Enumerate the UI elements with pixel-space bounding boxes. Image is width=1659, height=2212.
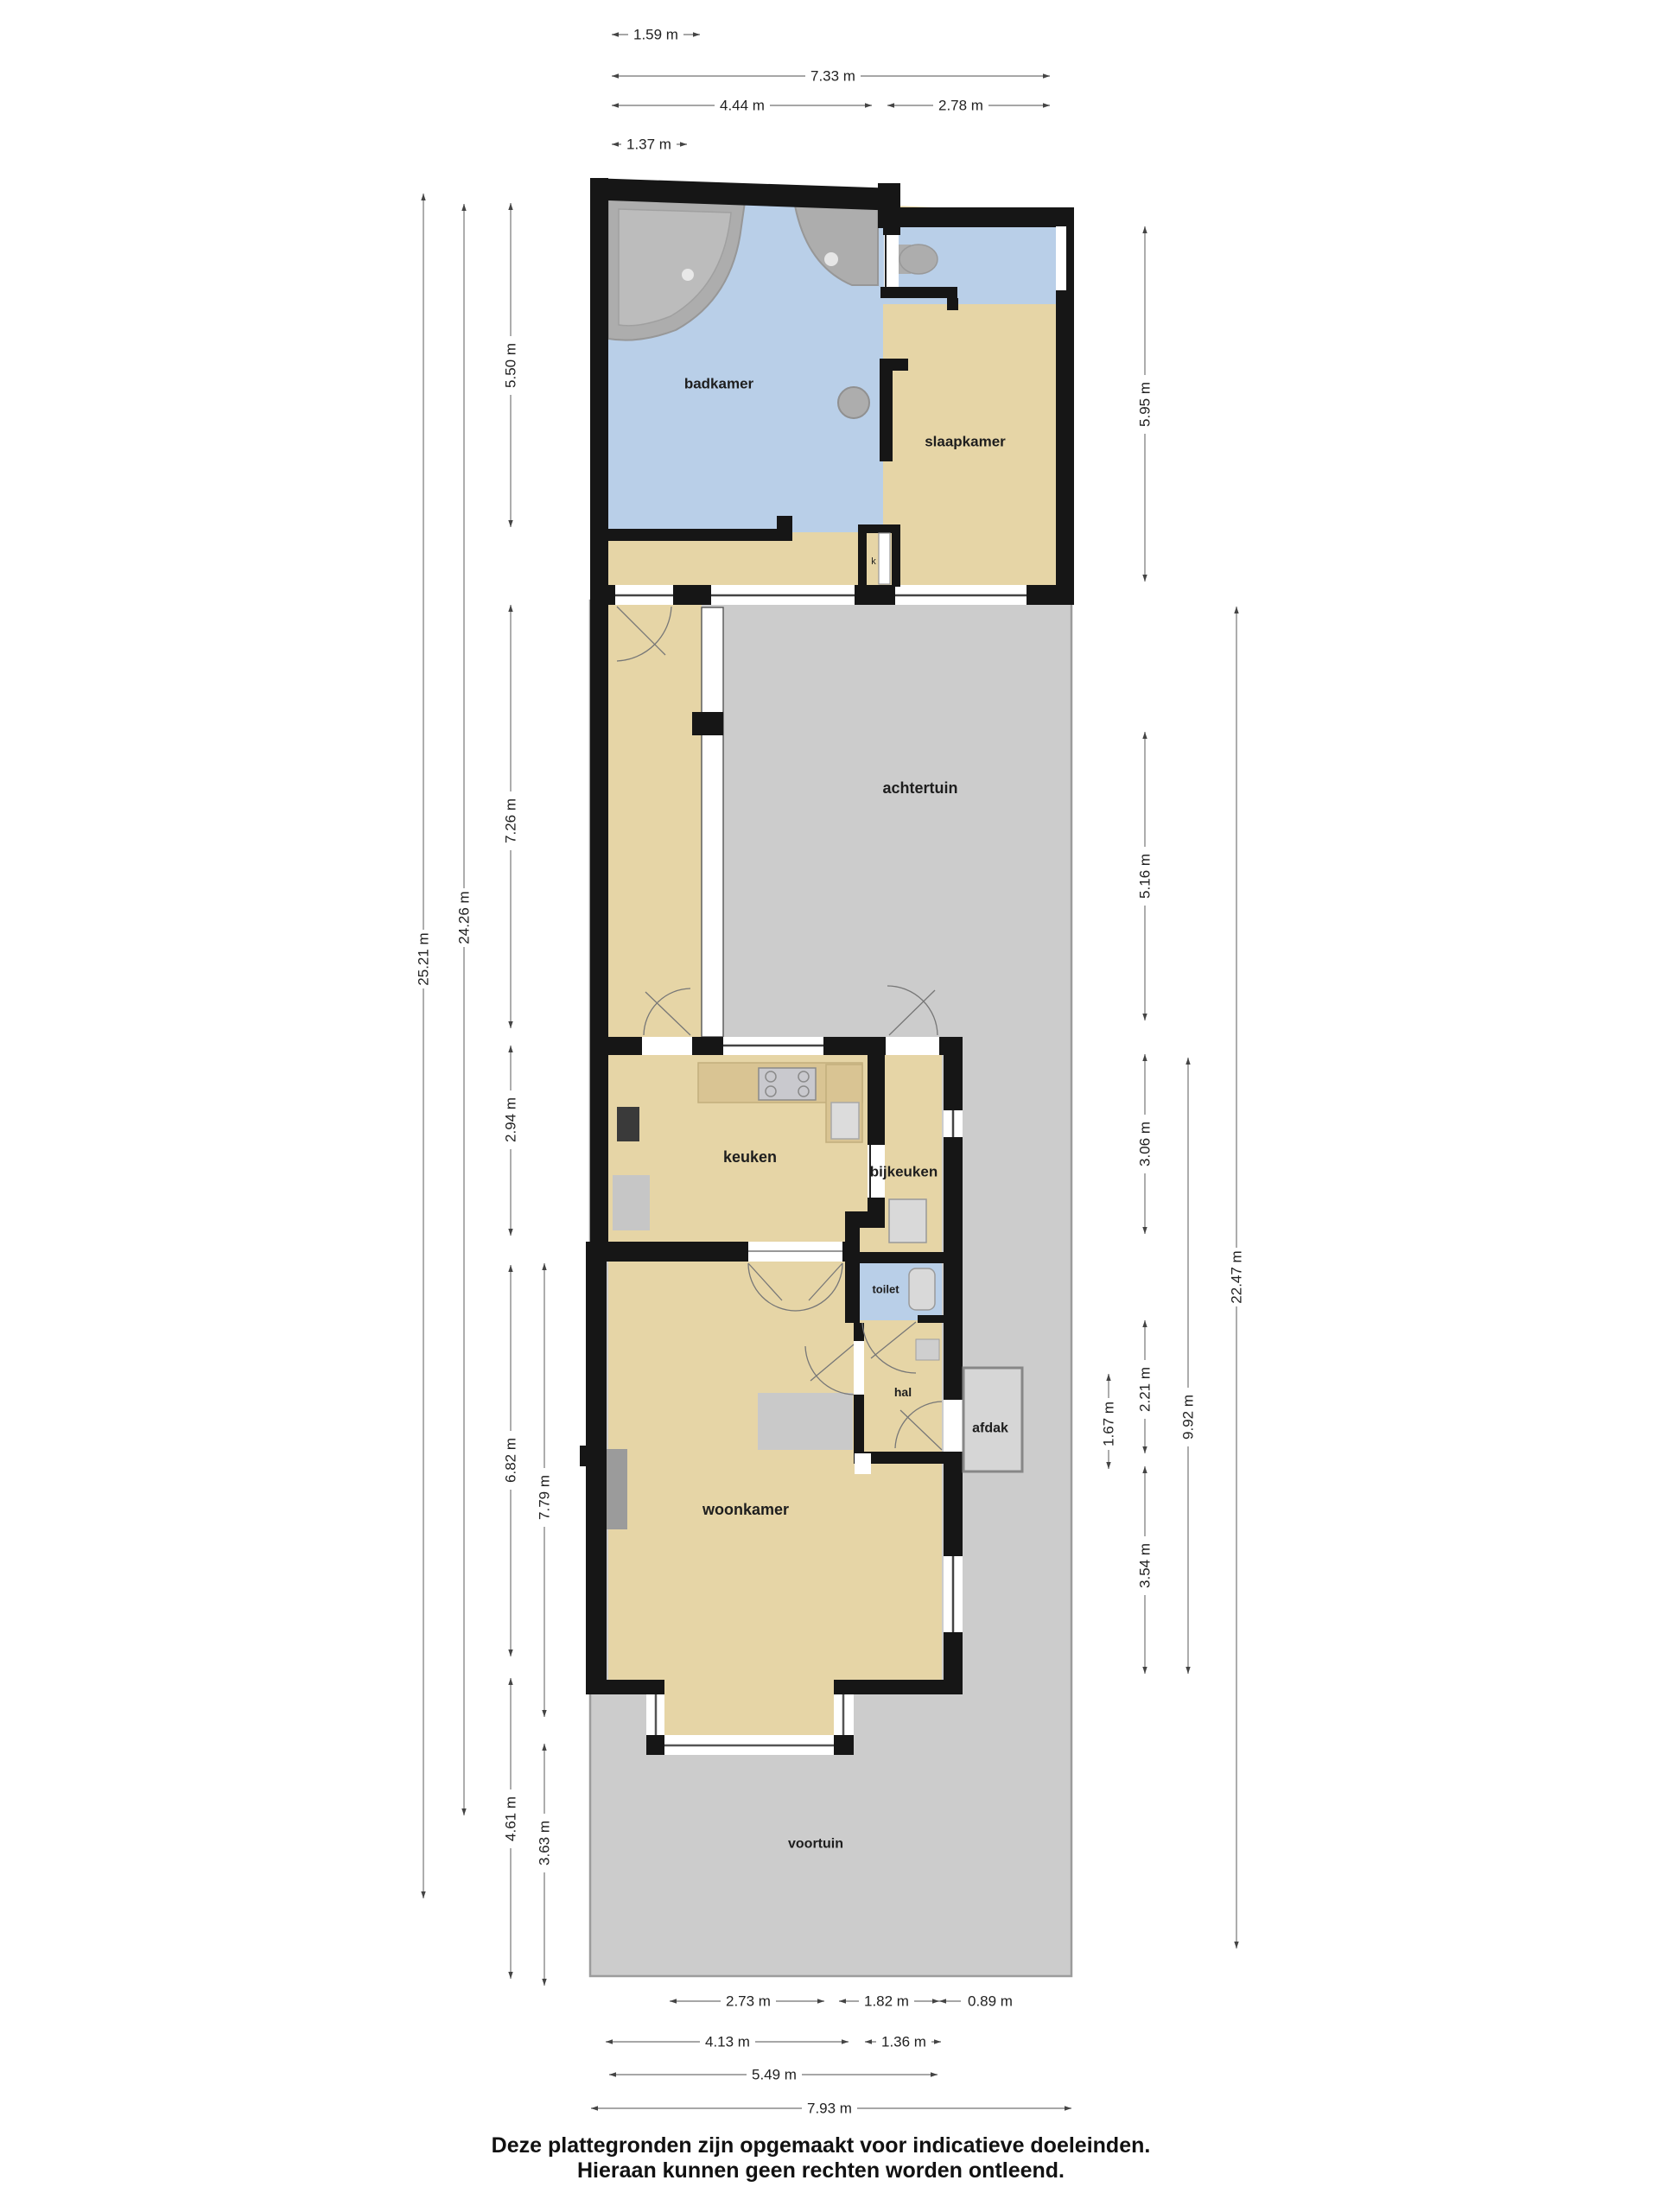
svg-text:5.95 m: 5.95 m xyxy=(1137,382,1154,427)
svg-text:7.93 m: 7.93 m xyxy=(807,2101,852,2117)
svg-text:3.54 m: 3.54 m xyxy=(1137,1543,1154,1588)
svg-text:2.21 m: 2.21 m xyxy=(1137,1367,1154,1412)
svg-text:3.63 m: 3.63 m xyxy=(537,1821,553,1866)
svg-text:2.73 m: 2.73 m xyxy=(726,1993,771,2010)
svg-text:hal: hal xyxy=(894,1385,912,1399)
svg-text:Hieraan kunnen geen rechten wo: Hieraan kunnen geen rechten worden ontle… xyxy=(577,2158,1065,2183)
svg-text:1.82 m: 1.82 m xyxy=(864,1993,909,2010)
svg-text:1.36 m: 1.36 m xyxy=(881,2034,926,2050)
svg-text:25.21 m: 25.21 m xyxy=(416,932,432,985)
svg-text:2.94 m: 2.94 m xyxy=(503,1097,519,1142)
svg-text:voortuin: voortuin xyxy=(788,1837,843,1852)
svg-text:5.16 m: 5.16 m xyxy=(1137,854,1154,899)
svg-text:3.06 m: 3.06 m xyxy=(1137,1122,1154,1166)
svg-text:slaapkamer: slaapkamer xyxy=(925,434,1006,450)
svg-text:toilet: toilet xyxy=(872,1283,899,1296)
svg-text:2.78 m: 2.78 m xyxy=(938,98,983,114)
svg-text:woonkamer: woonkamer xyxy=(702,1501,789,1518)
svg-text:1.59 m: 1.59 m xyxy=(633,27,678,43)
svg-text:5.49 m: 5.49 m xyxy=(752,2067,797,2083)
svg-text:k: k xyxy=(871,556,876,567)
svg-text:4.61 m: 4.61 m xyxy=(503,1796,519,1841)
svg-text:Deze plattegronden zijn opgema: Deze plattegronden zijn opgemaakt voor i… xyxy=(492,2133,1151,2158)
svg-text:0.89 m: 0.89 m xyxy=(968,1993,1013,2010)
svg-text:bijkeuken: bijkeuken xyxy=(870,1164,938,1180)
svg-text:1.37 m: 1.37 m xyxy=(626,137,671,153)
svg-text:5.50 m: 5.50 m xyxy=(503,343,519,388)
svg-text:24.26 m: 24.26 m xyxy=(456,891,473,944)
svg-text:6.82 m: 6.82 m xyxy=(503,1438,519,1483)
svg-text:9.92 m: 9.92 m xyxy=(1180,1395,1197,1440)
svg-text:badkamer: badkamer xyxy=(684,376,754,392)
svg-text:7.79 m: 7.79 m xyxy=(537,1475,553,1520)
svg-text:1.67 m: 1.67 m xyxy=(1101,1402,1117,1446)
svg-text:22.47 m: 22.47 m xyxy=(1229,1250,1245,1303)
svg-text:7.33 m: 7.33 m xyxy=(810,68,855,85)
svg-text:7.26 m: 7.26 m xyxy=(503,798,519,843)
svg-text:keuken: keuken xyxy=(723,1148,777,1166)
svg-text:afdak: afdak xyxy=(972,1421,1008,1436)
svg-text:4.13 m: 4.13 m xyxy=(705,2034,750,2050)
svg-text:4.44 m: 4.44 m xyxy=(720,98,765,114)
svg-text:achtertuin: achtertuin xyxy=(882,779,957,797)
